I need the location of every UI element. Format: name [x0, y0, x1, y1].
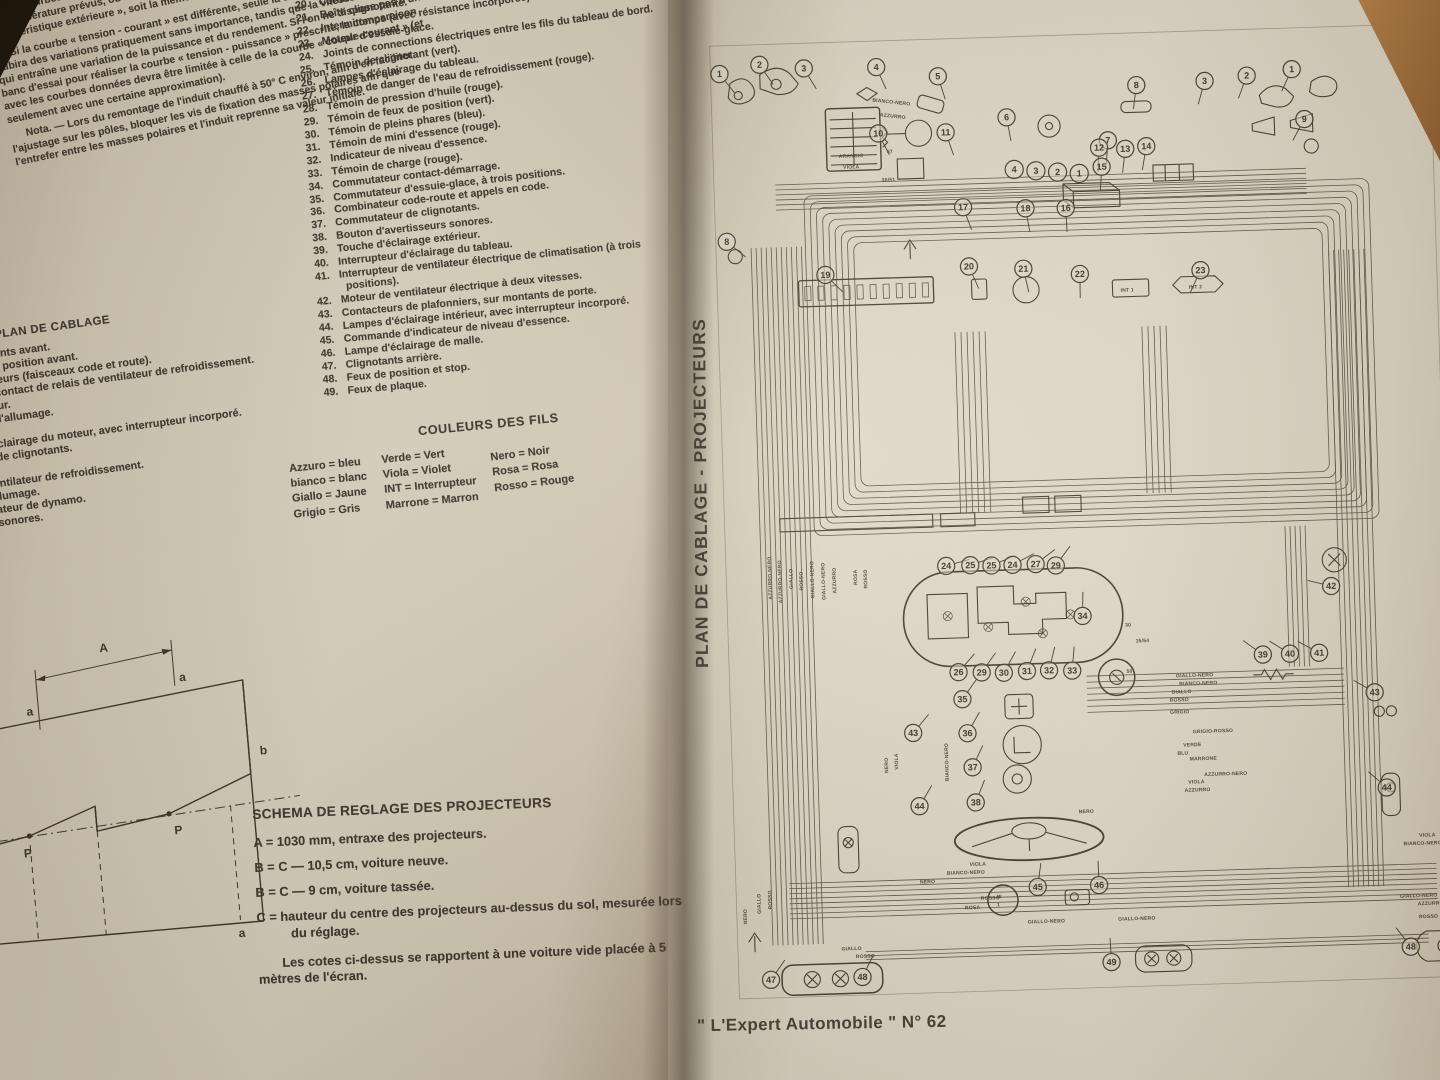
point-P-left — [27, 833, 33, 839]
headlamp-icon — [728, 78, 755, 104]
svg-text:6: 6 — [1004, 112, 1009, 122]
wire-label: BIANCO-NERO — [944, 743, 951, 781]
ground-arrow-icon — [904, 240, 917, 259]
wire-label: 30 — [1125, 623, 1131, 629]
spark-plug-2: 2 — [1048, 163, 1067, 182]
wire-label: GIALLO-NERO — [1118, 915, 1155, 922]
relay-icon — [897, 158, 924, 179]
wire-label: GRIGIO — [1170, 709, 1190, 716]
svg-text:41: 41 — [1314, 648, 1324, 658]
callout-20: 20 — [960, 258, 978, 276]
motor-icon — [882, 120, 932, 148]
wire-label: NERO — [743, 909, 749, 924]
svg-text:16: 16 — [1061, 203, 1071, 213]
wire-label: 1 — [997, 902, 1000, 908]
callout-2: 2 — [1238, 67, 1256, 85]
P-label-right: P — [174, 823, 183, 838]
projection-lines — [28, 805, 241, 940]
svg-text:48: 48 — [1406, 942, 1416, 952]
callout-24: 24 — [937, 557, 955, 575]
callout-41: 41 — [1310, 644, 1328, 662]
callout-11: 11 — [937, 124, 955, 142]
bottom-a-label: a — [238, 926, 246, 941]
wire-label: GIALLO — [1171, 689, 1191, 696]
svg-text:5: 5 — [935, 71, 940, 81]
wire-label: AZZURRO — [832, 568, 839, 594]
svg-text:36: 36 — [962, 728, 972, 738]
callout-27: 27 — [1027, 555, 1045, 573]
wire-bundles — [749, 165, 1439, 963]
svg-text:25: 25 — [986, 560, 996, 570]
svg-text:44: 44 — [1382, 782, 1392, 792]
wire-label: 30/51 — [882, 177, 896, 183]
callout-5: 5 — [929, 67, 947, 85]
wire-label: MARRONE — [1190, 756, 1218, 763]
book-spine-shadow — [642, 0, 714, 1080]
svg-text:15: 15 — [1096, 162, 1106, 172]
item-number: 33. — [307, 166, 332, 181]
callout-18: 18 — [1017, 199, 1035, 217]
wire-label: INT 1 — [1121, 287, 1134, 293]
wire-label: GIALLO-NERO — [809, 561, 816, 598]
svg-text:3: 3 — [801, 63, 806, 73]
svg-text:44: 44 — [914, 801, 924, 811]
door-lamp-icon — [838, 826, 860, 873]
wire-label: VIOLA — [970, 861, 987, 868]
wire-label: BLU — [1177, 750, 1188, 756]
svg-text:4: 4 — [1012, 164, 1017, 174]
svg-text:47: 47 — [766, 975, 776, 985]
wire-color-labels: BIANCO-NEROAZZURROARANCIOVIOLA8730/51AZZ… — [717, 80, 1440, 963]
steering-wheel-icon — [954, 816, 1104, 863]
svg-text:43: 43 — [908, 728, 918, 738]
svg-text:3: 3 — [1033, 166, 1038, 176]
svg-text:29: 29 — [977, 667, 987, 677]
component-symbols — [721, 48, 1440, 997]
turn-signal-switch-icon — [1003, 764, 1032, 793]
wire-label: AZZURRO — [880, 112, 906, 121]
callout-30: 30 — [995, 664, 1013, 682]
svg-text:2: 2 — [757, 60, 762, 70]
callout-1: 1 — [1283, 60, 1301, 78]
ground-arrow-icon — [748, 933, 761, 952]
svg-text:30: 30 — [999, 668, 1009, 678]
callout-26: 26 — [950, 663, 968, 681]
b-label: b — [259, 743, 268, 758]
callout-31: 31 — [1018, 662, 1036, 680]
P-label-left: P — [23, 846, 32, 861]
wire-label: 15/54 — [1136, 638, 1150, 644]
light-combi-switch-icon — [1003, 725, 1042, 764]
wire-label: ROSSO — [863, 569, 870, 588]
wire-label: GIALLO — [841, 946, 861, 953]
callout-3: 3 — [795, 60, 813, 78]
callout-39: 39 — [1254, 646, 1272, 664]
svg-text:35: 35 — [957, 694, 967, 704]
connector-icon — [1121, 101, 1151, 113]
callout-32: 32 — [1040, 662, 1058, 680]
distributor-icon — [1038, 115, 1061, 138]
callout-49: 49 — [1103, 953, 1121, 971]
point-P-right — [166, 811, 172, 817]
wire-label: AZZURRO-NERO — [767, 556, 774, 599]
callout-6: 6 — [998, 109, 1016, 127]
wire-label: BIANCO-NERO — [872, 97, 911, 107]
svg-text:20: 20 — [964, 261, 974, 271]
schema-line: C = hauteur du centre des projecteurs au… — [256, 893, 691, 943]
callout-47: 47 — [762, 971, 780, 989]
schema-reglage-section: SCHEMA DE REGLAGE DES PROJECTEURS A = 10… — [252, 789, 693, 988]
wire-label: ROSA — [853, 569, 859, 585]
svg-text:29: 29 — [1051, 560, 1061, 570]
svg-text:14: 14 — [1141, 141, 1151, 151]
callout-8: 8 — [718, 233, 736, 251]
plate-lamp-icon — [1135, 945, 1192, 973]
wire-label: 87 — [887, 149, 893, 155]
callout-36: 36 — [959, 724, 977, 742]
wire-label: GIALLO-NERO — [1176, 672, 1213, 679]
wire-label: VERDE — [1183, 742, 1202, 749]
callout-34: 34 — [1074, 607, 1092, 625]
svg-text:46: 46 — [1094, 880, 1104, 890]
terminal-strip-icon — [780, 514, 933, 532]
dim-label: A — [99, 641, 109, 656]
item-number: 41. — [315, 270, 340, 284]
svg-text:25: 25 — [965, 560, 975, 570]
callout-13: 13 — [1116, 140, 1134, 158]
callout-42: 42 — [1322, 577, 1340, 595]
wire-label: BIANCO-NERO — [947, 870, 985, 877]
callout-2: 2 — [751, 56, 769, 74]
wire-label: ROSSO — [798, 571, 805, 590]
callout-12: 12 — [1090, 139, 1108, 157]
svg-text:3: 3 — [1202, 76, 1207, 86]
svg-text:8: 8 — [1134, 80, 1139, 90]
legend-column-3: Nero = NoirRosa = RosaRosso = Rouge — [490, 440, 577, 511]
callout-15: 15 — [1093, 158, 1111, 176]
callout-33: 33 — [1063, 662, 1081, 680]
svg-text:8: 8 — [724, 237, 729, 247]
switch-icon — [916, 94, 945, 114]
svg-text:1: 1 — [1077, 168, 1082, 178]
schema-lines: A = 1030 mm, entraxe des projecteurs.B =… — [253, 818, 691, 943]
svg-text:12: 12 — [1094, 143, 1104, 153]
wire-label: ROSSO — [767, 890, 774, 909]
callout-3: 3 — [1196, 72, 1214, 90]
callout-48: 48 — [1402, 938, 1420, 956]
svg-text:32: 32 — [1044, 665, 1054, 675]
svg-text:22: 22 — [1075, 269, 1085, 279]
door-contact-icon — [1374, 706, 1396, 717]
svg-text:33: 33 — [1067, 665, 1077, 675]
repeater-lamp-icon — [1304, 139, 1319, 154]
callout-29: 29 — [1047, 557, 1065, 575]
callout-29: 29 — [973, 664, 991, 682]
svg-text:48: 48 — [857, 972, 867, 982]
wire-label: NERO — [920, 879, 935, 885]
svg-text:17: 17 — [958, 202, 968, 212]
wire-label: ROSA — [965, 905, 981, 911]
callout-44: 44 — [1378, 779, 1396, 797]
wire-label: ROSSO — [981, 895, 1000, 902]
callout-16: 16 — [1057, 199, 1075, 217]
wire-label: GRIGIO-ROSSO — [1193, 728, 1233, 735]
wire-label: VIOLA — [843, 164, 860, 171]
wire-label: GIALLO-NERO — [1400, 893, 1437, 900]
callout-37: 37 — [964, 758, 982, 776]
callout-44: 44 — [911, 797, 929, 815]
svg-text:45: 45 — [1033, 882, 1043, 892]
wire-label: ROSSO — [1170, 697, 1189, 704]
svg-text:13: 13 — [1120, 144, 1130, 154]
item-number: 32. — [306, 153, 331, 168]
legend-column-1: Azzuro = bleubianco = blancGiallo = Jaun… — [288, 454, 370, 523]
callout-4: 4 — [867, 58, 885, 76]
headlamp-icon — [1259, 85, 1294, 107]
callout-17: 17 — [954, 198, 972, 216]
svg-text:26: 26 — [953, 667, 963, 677]
callout-45: 45 — [1029, 878, 1047, 896]
headlamp-icon — [760, 68, 799, 96]
svg-text:18: 18 — [1020, 203, 1030, 213]
wire-label: AZZURRO — [1418, 900, 1440, 907]
svg-text:27: 27 — [1030, 559, 1040, 569]
spark-plug-4: 4 — [1005, 160, 1024, 179]
wire-label: AZZURRO-NERO — [777, 560, 784, 603]
wire-label: VIOLA — [1188, 779, 1205, 786]
callout-43: 43 — [904, 724, 922, 742]
wire-label: GIALLO — [756, 894, 763, 914]
svg-text:23: 23 — [1195, 265, 1205, 275]
callout-22: 22 — [1071, 265, 1089, 283]
callout-14: 14 — [1137, 137, 1155, 155]
svg-text:2: 2 — [1055, 167, 1060, 177]
svg-text:9: 9 — [1302, 114, 1307, 124]
callout-9: 9 — [1296, 110, 1314, 128]
stop-switch-icon — [971, 279, 987, 300]
wire-label: NERO — [1079, 809, 1094, 815]
svg-text:2: 2 — [1244, 71, 1249, 81]
svg-text:1: 1 — [1289, 64, 1294, 74]
svg-text:24: 24 — [941, 561, 951, 571]
svg-text:34: 34 — [1077, 611, 1087, 621]
wire-label: BIANCO-NERO — [1404, 840, 1440, 847]
wire-label: ARANCIO — [839, 153, 864, 160]
callout-43: 43 — [1366, 683, 1384, 701]
ignition-switch-icon — [1098, 659, 1135, 696]
svg-text:1: 1 — [717, 69, 722, 79]
numbered-callouts: 1234581011678321912131415161718192021222… — [710, 36, 1420, 989]
svg-text:43: 43 — [1370, 687, 1380, 697]
callout-38: 38 — [967, 794, 985, 812]
svg-text:21: 21 — [1018, 264, 1028, 274]
svg-text:31: 31 — [1022, 666, 1032, 676]
svg-text:49: 49 — [1106, 957, 1116, 967]
wiring-diagram: 1234581011678321912131415161718192021222… — [706, 13, 1440, 1027]
svg-text:10: 10 — [873, 128, 883, 138]
svg-text:38: 38 — [971, 797, 981, 807]
svg-text:19: 19 — [820, 270, 830, 280]
tick-label-right: a — [179, 670, 187, 685]
svg-text:37: 37 — [967, 762, 977, 772]
item-number: 34. — [308, 179, 333, 194]
wire-label: VIOLA — [1419, 832, 1436, 839]
wire-label: NERO — [884, 758, 890, 773]
svg-text:40: 40 — [1285, 649, 1295, 659]
svg-text:39: 39 — [1258, 649, 1268, 659]
headlamp-icon — [1309, 76, 1337, 97]
svg-text:24: 24 — [1007, 560, 1017, 570]
wire-label: VIOLA — [894, 753, 901, 770]
callout-35: 35 — [954, 690, 972, 708]
callout-24: 24 — [1004, 556, 1022, 574]
callout-10: 10 — [869, 125, 887, 143]
wire-label: ROSSO — [1419, 914, 1438, 921]
legend-column-2: Verde = VertViola = VioletINT = Interrup… — [381, 444, 480, 514]
trunk-lamp-icon — [1065, 889, 1090, 905]
callout-40: 40 — [1281, 645, 1299, 663]
callout-8: 8 — [1127, 76, 1145, 94]
step-edge — [95, 806, 97, 831]
svg-text:4: 4 — [874, 62, 879, 72]
wiper-switch-icon — [1005, 694, 1034, 719]
svg-text:11: 11 — [941, 127, 951, 137]
wire-label: GIALLO-NERO — [820, 563, 827, 600]
callout-23: 23 — [1192, 261, 1210, 279]
spark-plug-1: 1 — [1070, 164, 1089, 183]
callout-48: 48 — [854, 968, 872, 986]
wire-label: 50 — [1126, 669, 1132, 675]
spark-plug-3: 3 — [1027, 161, 1046, 180]
wire-label: AZZURRO-NERO — [1204, 771, 1247, 778]
wire-label: BIANCO-NERO — [1179, 680, 1217, 687]
callout-25: 25 — [961, 556, 979, 574]
wire-label: GIALLO — [788, 569, 795, 589]
book-photo: — Un ressort hélicoïdal de pres-— Un cer… — [0, 0, 1440, 1080]
callout-21: 21 — [1015, 260, 1033, 278]
svg-text:42: 42 — [1326, 581, 1336, 591]
wire-label: ROSSO — [856, 953, 875, 960]
tick-label-left: a — [26, 704, 34, 719]
repeater-lamp-icon — [728, 249, 743, 264]
callout-46: 46 — [1090, 876, 1108, 894]
callout-25: 25 — [983, 557, 1001, 575]
callout-19: 19 — [817, 266, 835, 284]
wire-label: INT 2 — [1189, 284, 1202, 290]
wire-label: AZZURRO — [1185, 787, 1211, 794]
wire-label: GIALLO-NERO — [1028, 918, 1065, 925]
